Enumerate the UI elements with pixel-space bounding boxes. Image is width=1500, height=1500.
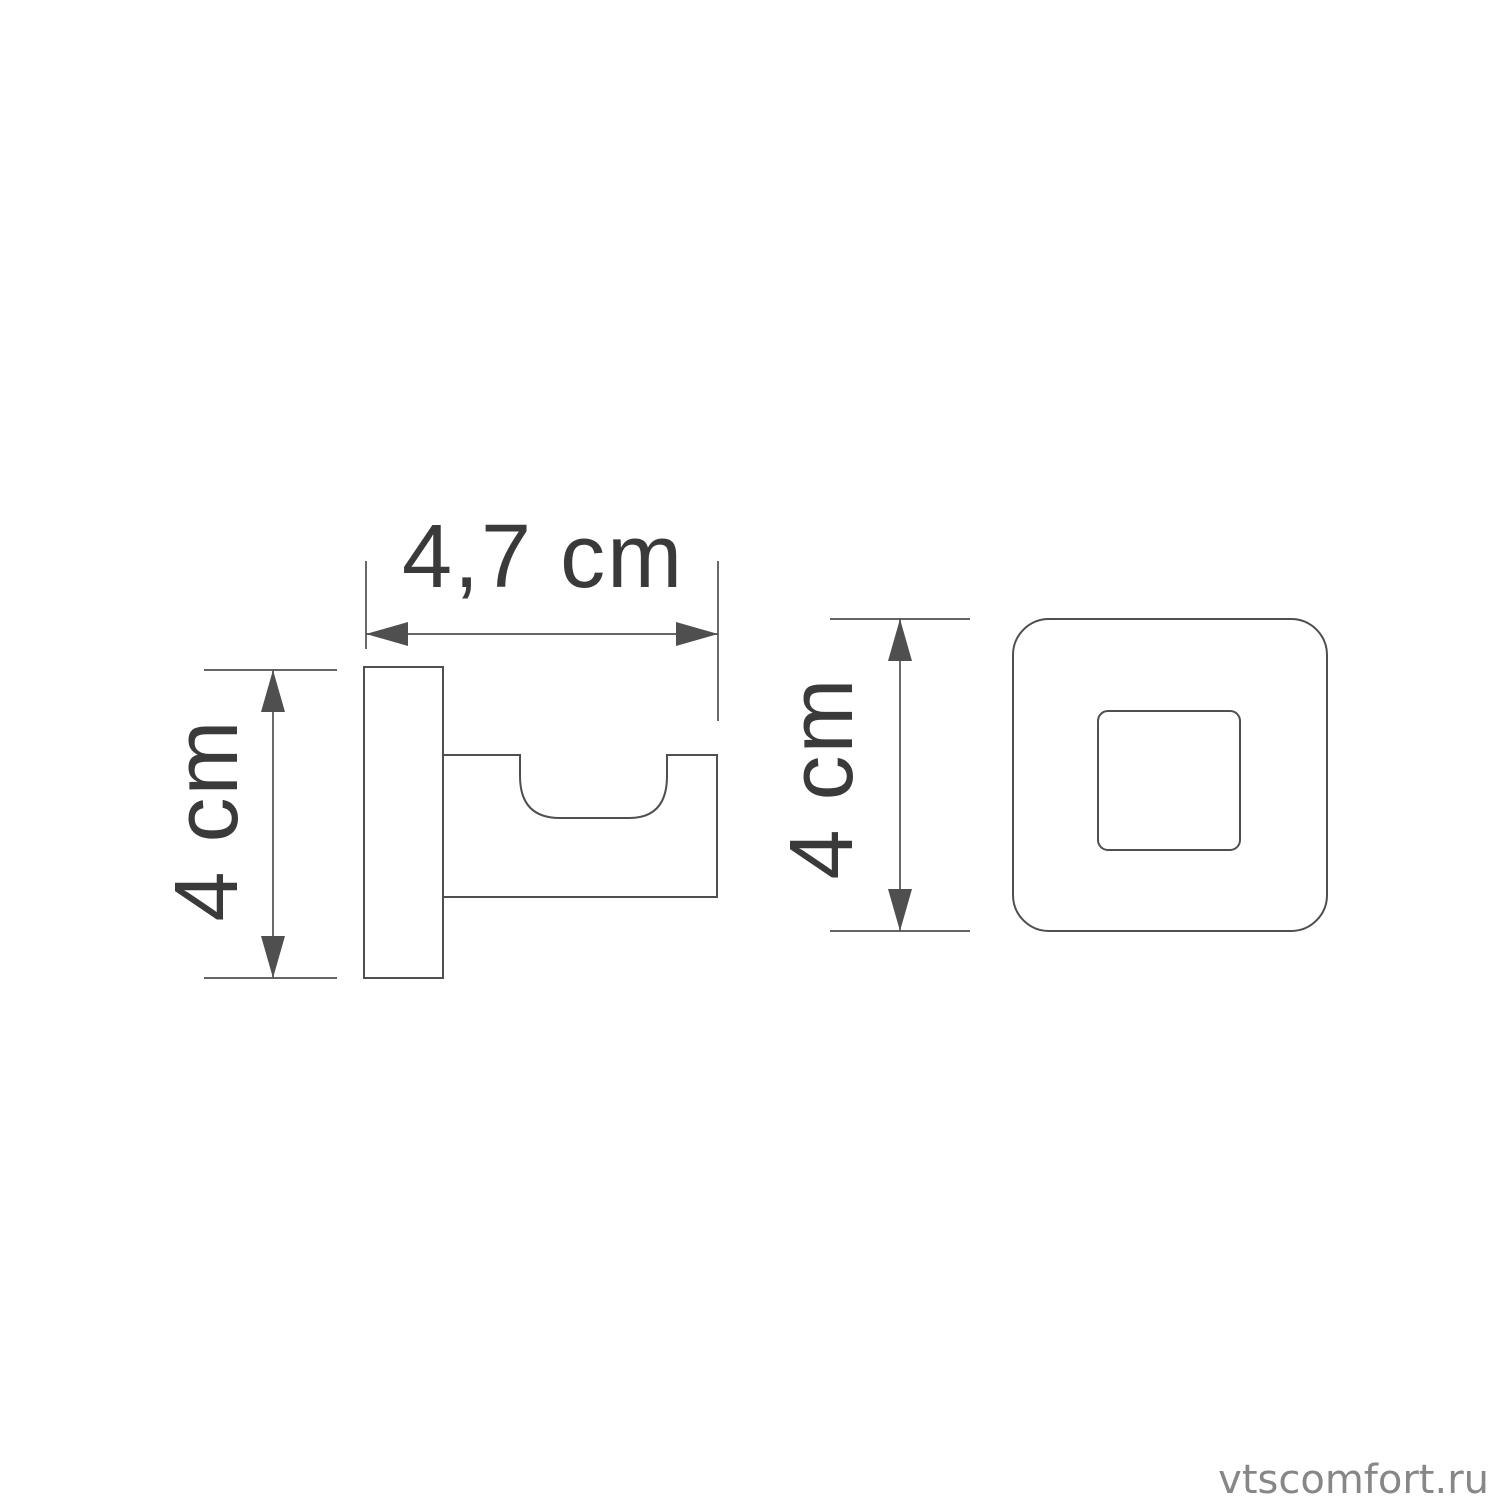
width-dimension: 4,7 cm bbox=[366, 507, 718, 721]
front-view-outer-square bbox=[1013, 619, 1327, 931]
side-view-hook-arm bbox=[443, 755, 717, 897]
side-height-dimension: 4 cm bbox=[157, 670, 337, 978]
side-view bbox=[364, 667, 717, 978]
front-height-arrow-top-icon bbox=[888, 619, 912, 661]
width-dimension-arrow-left-icon bbox=[366, 622, 408, 646]
width-dimension-label: 4,7 cm bbox=[402, 507, 684, 607]
side-height-arrow-top-icon bbox=[261, 670, 285, 712]
width-dimension-arrow-right-icon bbox=[676, 622, 718, 646]
front-height-arrow-bottom-icon bbox=[888, 889, 912, 931]
front-height-dimension-label: 4 cm bbox=[772, 676, 872, 879]
watermark: vtscomfort.ru bbox=[1218, 1457, 1489, 1500]
side-view-wall-plate bbox=[364, 667, 443, 978]
side-height-arrow-bottom-icon bbox=[261, 936, 285, 978]
technical-drawing-svg: 4,7 cm 4 cm 4 cm vtscomfort.ru bbox=[0, 0, 1500, 1500]
product-dimension-diagram: 4,7 cm 4 cm 4 cm vtscomfort.ru bbox=[0, 0, 1500, 1500]
front-height-dimension: 4 cm bbox=[772, 619, 970, 931]
side-height-dimension-label: 4 cm bbox=[157, 718, 257, 921]
front-view bbox=[1013, 619, 1327, 931]
front-view-inner-square bbox=[1098, 711, 1240, 850]
